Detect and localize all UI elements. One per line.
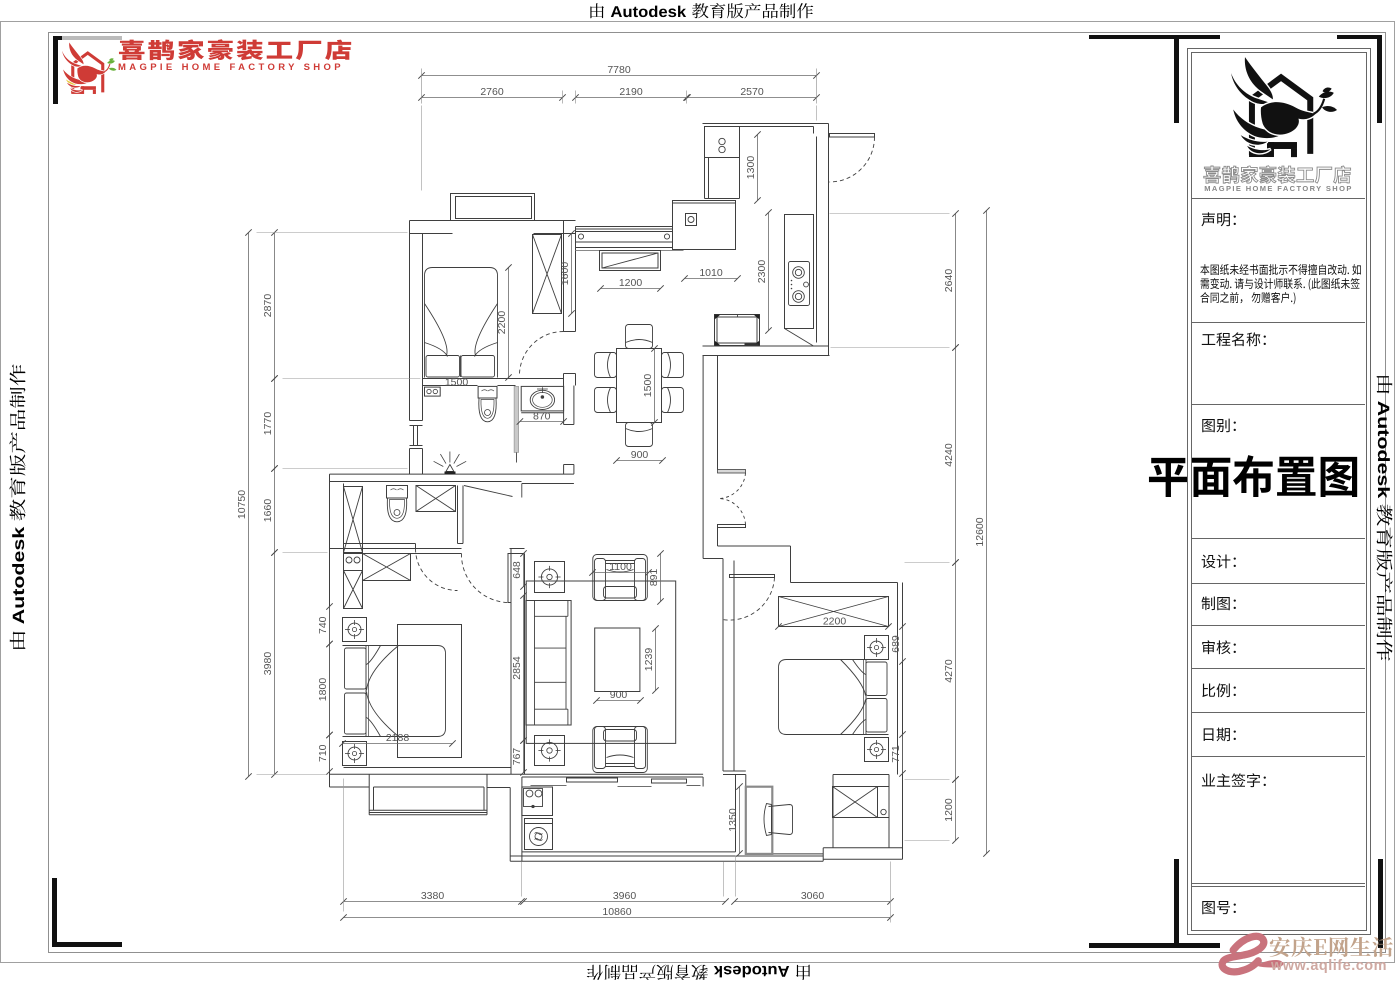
svg-text:767: 767 [511, 748, 523, 766]
svg-text:10860: 10860 [602, 906, 631, 918]
svg-text:2760: 2760 [480, 86, 504, 98]
svg-text:740: 740 [317, 616, 329, 634]
svg-text:1770: 1770 [262, 412, 274, 436]
svg-text:1660: 1660 [262, 499, 274, 523]
svg-text:2200: 2200 [496, 311, 508, 335]
svg-text:3960: 3960 [613, 890, 637, 902]
svg-text:1350: 1350 [727, 808, 739, 832]
svg-text:689: 689 [890, 635, 902, 653]
svg-text:1200: 1200 [619, 277, 643, 289]
svg-text:900: 900 [610, 689, 628, 701]
svg-text:10750: 10750 [236, 490, 248, 519]
svg-text:870: 870 [533, 411, 551, 423]
svg-text:3980: 3980 [262, 652, 274, 676]
svg-text:4240: 4240 [943, 443, 955, 467]
svg-text:2190: 2190 [619, 86, 643, 98]
svg-text:1500: 1500 [642, 374, 654, 398]
svg-text:3060: 3060 [801, 890, 825, 902]
svg-text:4270: 4270 [943, 659, 955, 683]
svg-text:771: 771 [890, 745, 902, 763]
svg-text:1010: 1010 [699, 267, 723, 279]
svg-text:12600: 12600 [974, 517, 986, 546]
svg-text:2188: 2188 [386, 732, 410, 744]
svg-text:1600: 1600 [559, 262, 571, 286]
svg-text:891: 891 [648, 569, 660, 587]
svg-text:7780: 7780 [607, 64, 631, 76]
svg-text:3380: 3380 [421, 890, 445, 902]
svg-text:2854: 2854 [511, 656, 523, 680]
svg-text:900: 900 [631, 449, 649, 461]
svg-text:2200: 2200 [823, 616, 847, 628]
svg-text:1500: 1500 [445, 377, 469, 389]
svg-text:2870: 2870 [262, 294, 274, 318]
svg-text:1800: 1800 [317, 678, 329, 702]
svg-text:648: 648 [511, 561, 523, 579]
svg-text:710: 710 [317, 744, 329, 762]
svg-text:1200: 1200 [943, 798, 955, 822]
svg-text:1239: 1239 [643, 648, 655, 672]
svg-text:1300: 1300 [745, 156, 757, 180]
svg-text:2640: 2640 [943, 269, 955, 293]
svg-text:2570: 2570 [740, 86, 764, 98]
svg-text:2300: 2300 [756, 260, 768, 284]
svg-text:1100: 1100 [609, 561, 632, 573]
